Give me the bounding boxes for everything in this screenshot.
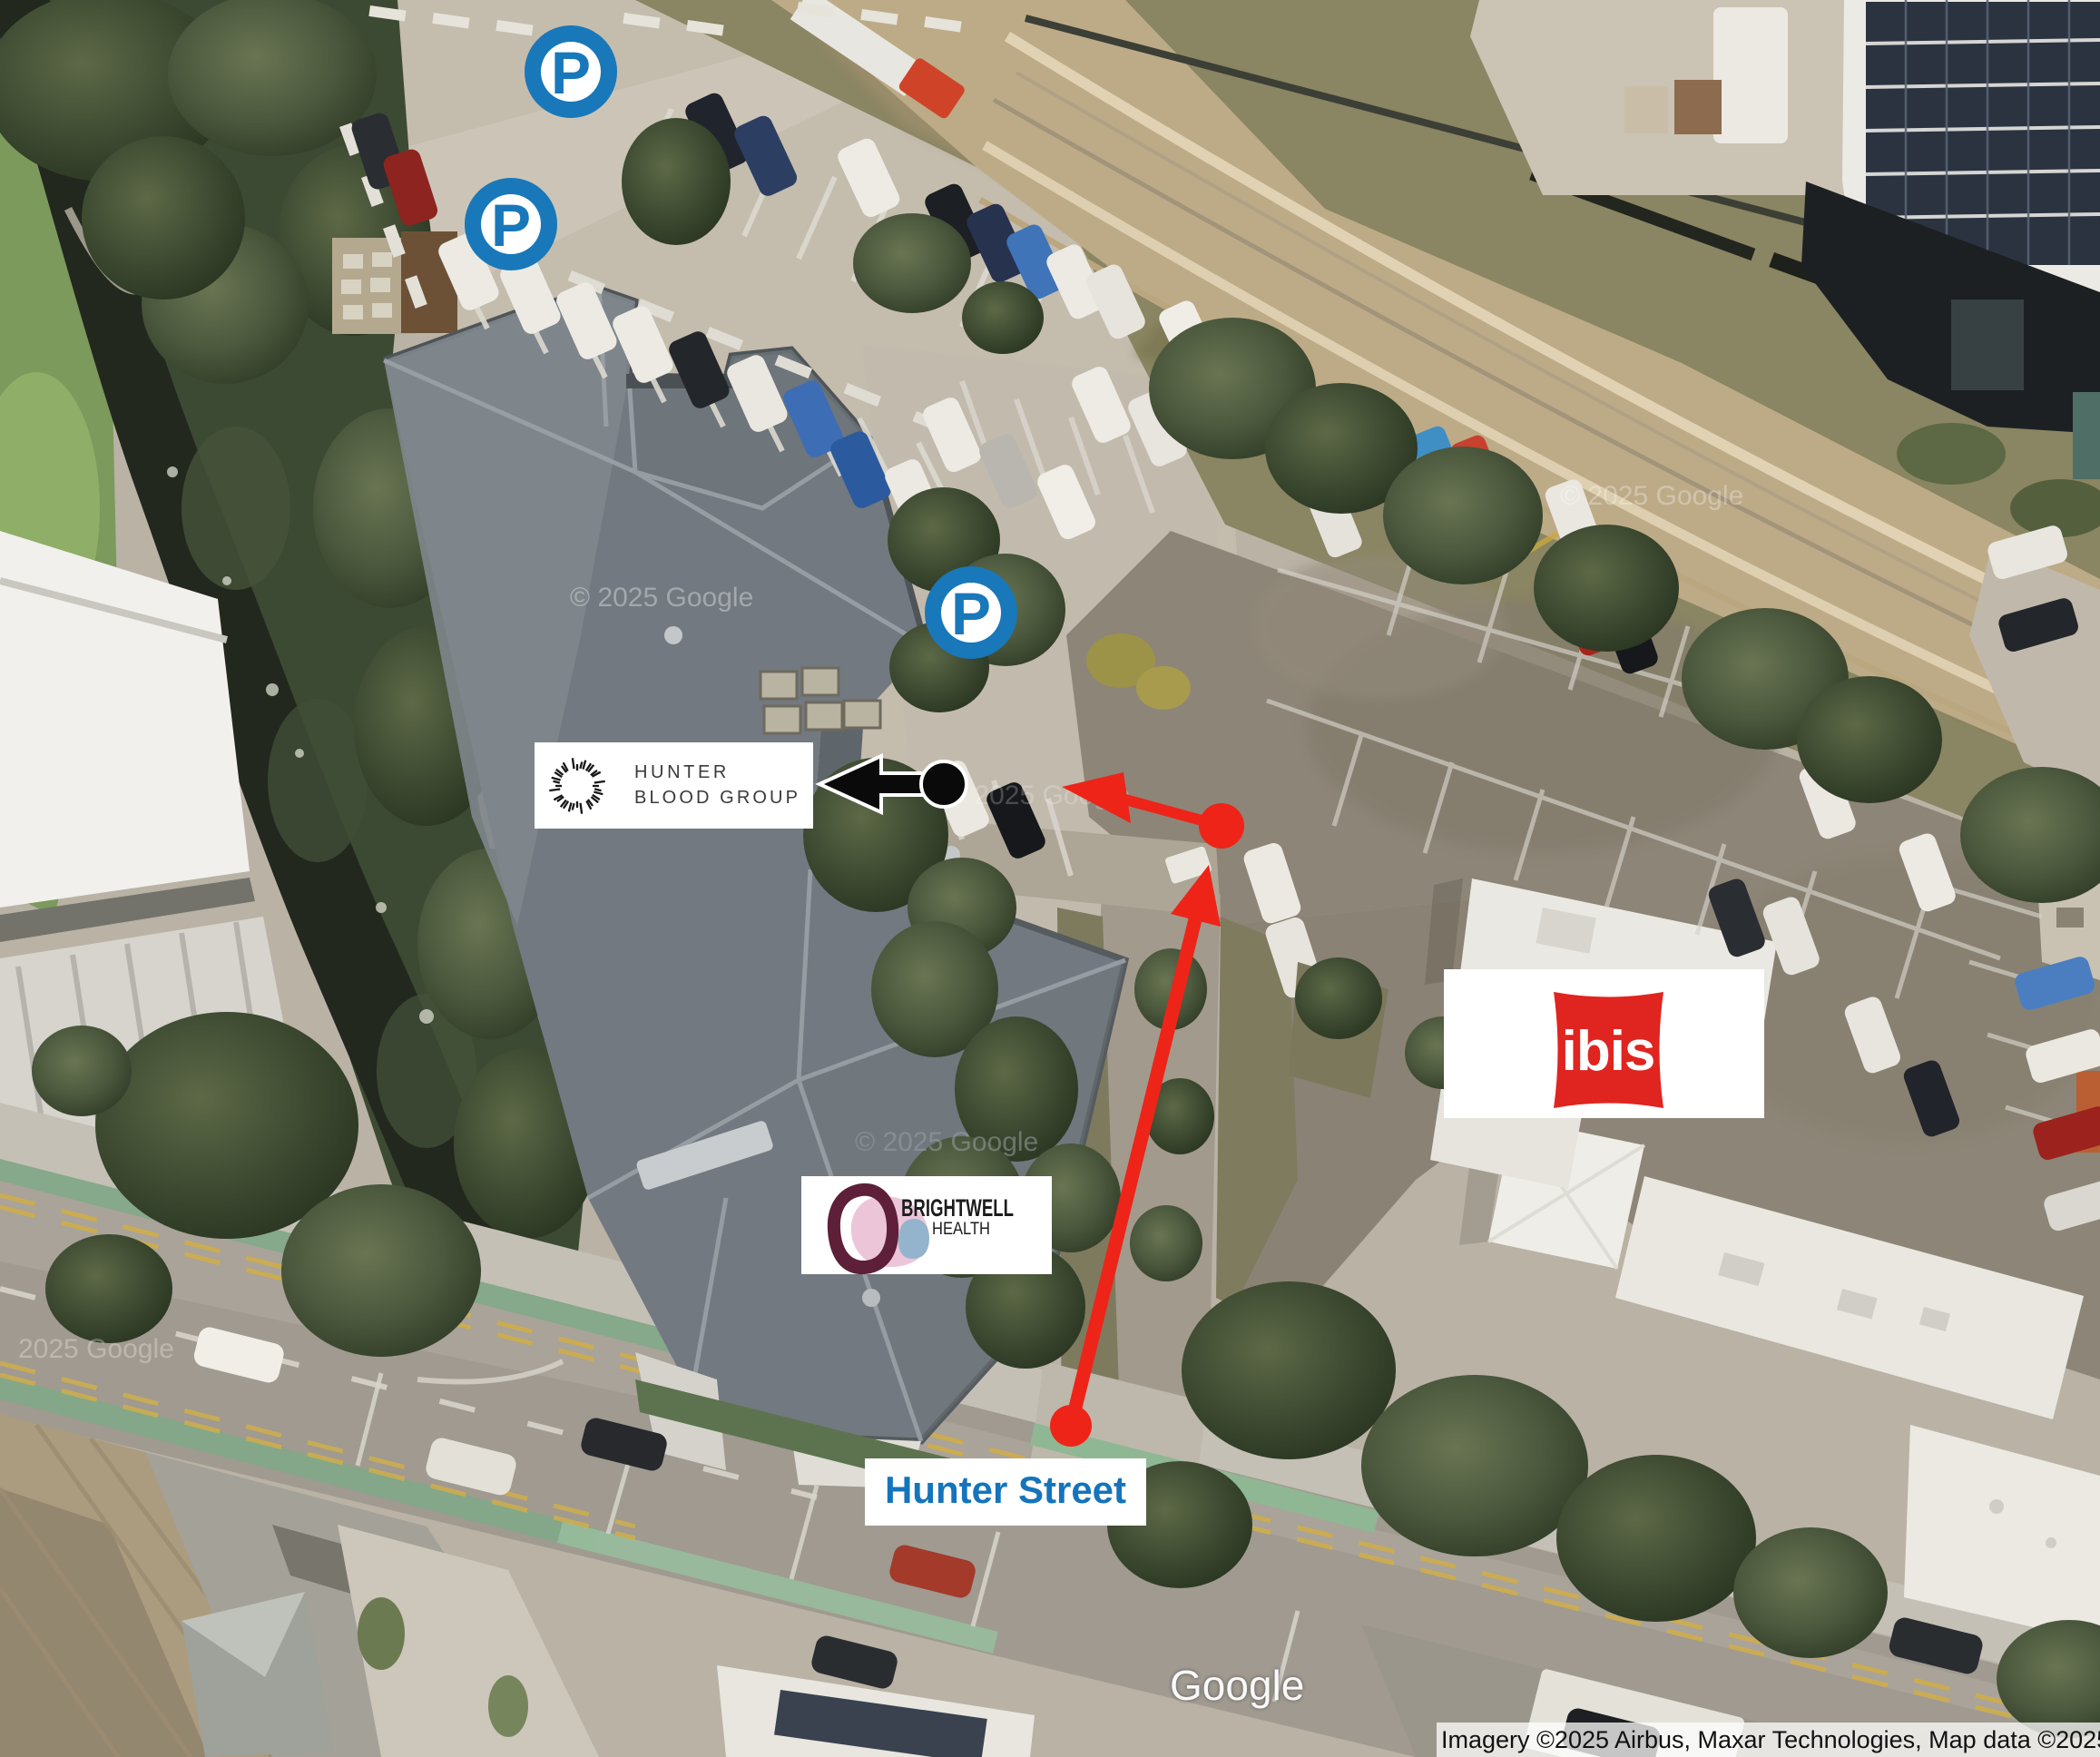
- svg-text:© 2025 Google: © 2025 Google: [570, 583, 753, 613]
- svg-text:HEALTH: HEALTH: [932, 1220, 990, 1239]
- svg-text:© 2025 Google: © 2025 Google: [1560, 481, 1743, 511]
- svg-text:BLOOD GROUP: BLOOD GROUP: [634, 788, 800, 808]
- svg-text:2025 Google: 2025 Google: [18, 1334, 174, 1364]
- svg-text:P: P: [951, 580, 991, 647]
- svg-text:© 2025 Google: © 2025 Google: [855, 1127, 1038, 1157]
- svg-text:P: P: [551, 39, 591, 106]
- svg-text:Imagery ©2025 Airbus, Maxar Te: Imagery ©2025 Airbus, Maxar Technologies…: [1441, 1726, 2100, 1753]
- svg-text:BRIGHTWELL: BRIGHTWELL: [901, 1194, 1014, 1222]
- svg-text:Hunter Street: Hunter Street: [885, 1468, 1126, 1511]
- svg-text:Google: Google: [1170, 1662, 1304, 1709]
- svg-text:ibis: ibis: [1562, 1020, 1655, 1083]
- svg-text:HUNTER: HUNTER: [634, 762, 730, 782]
- svg-text:P: P: [491, 191, 531, 259]
